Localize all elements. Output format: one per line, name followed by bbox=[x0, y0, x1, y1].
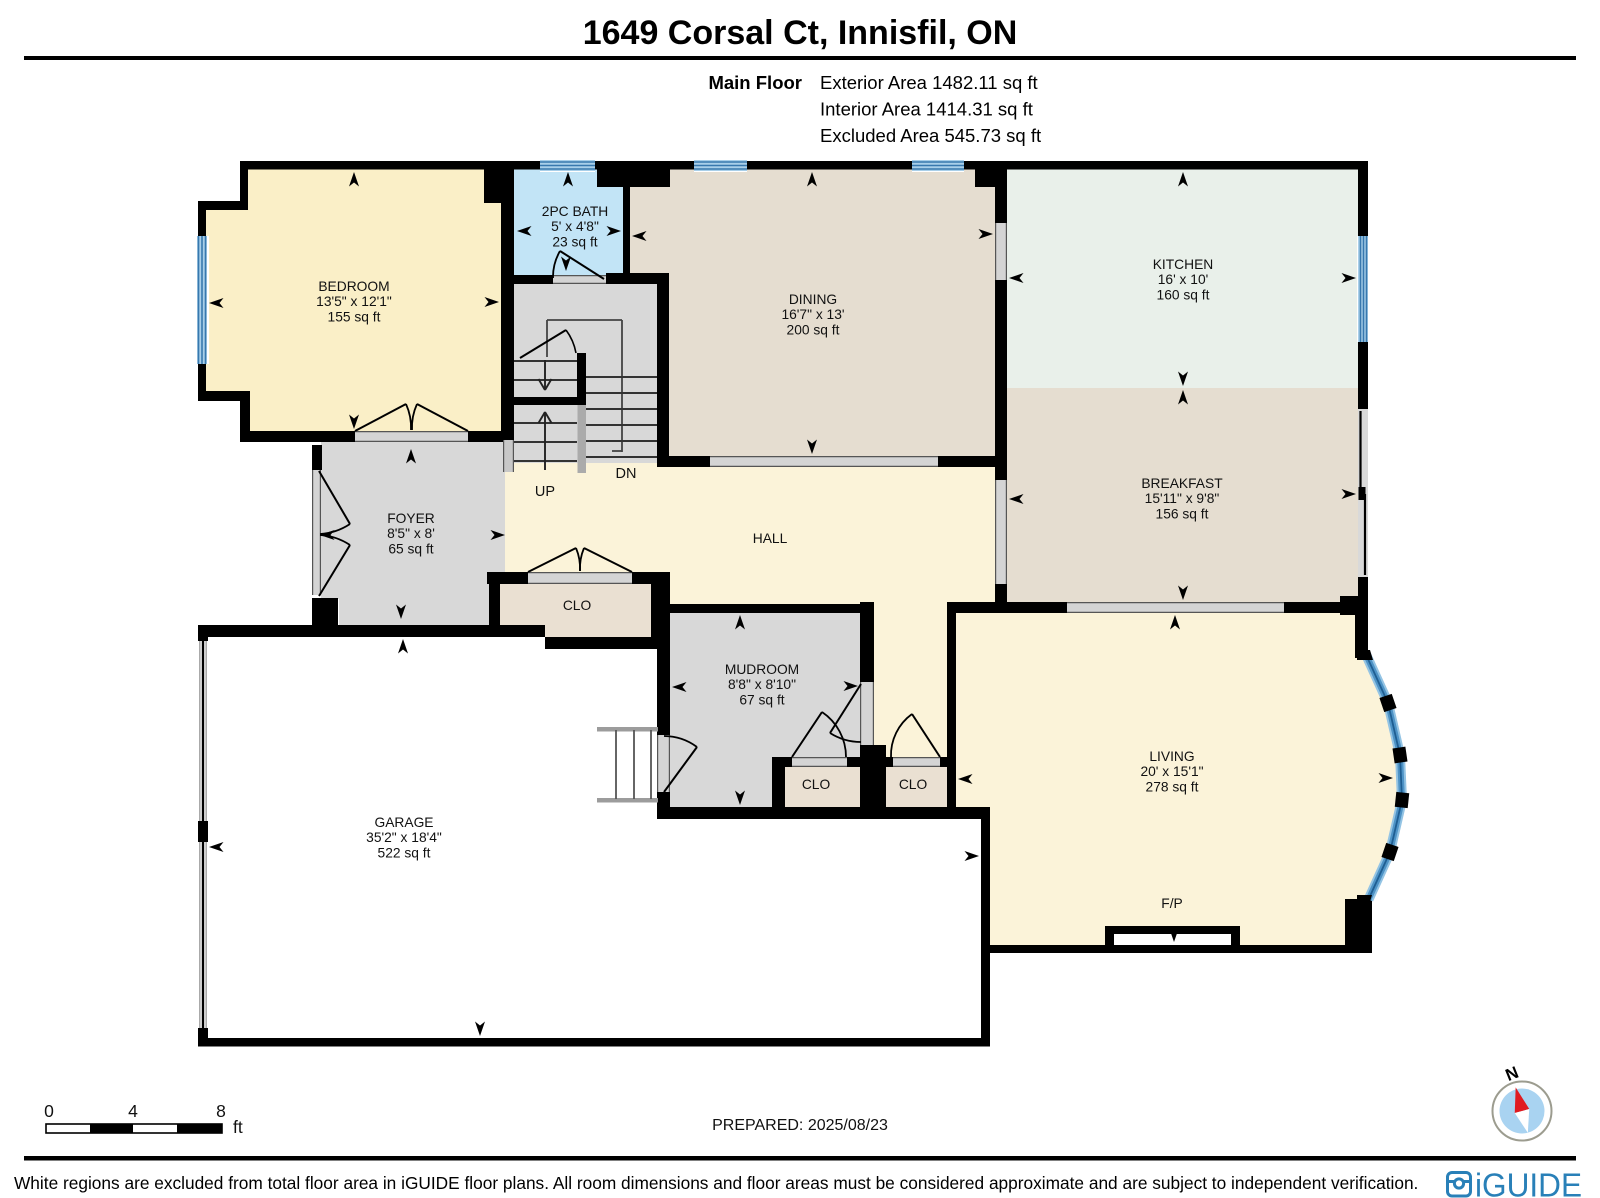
svg-text:PREPARED: 2025/08/23: PREPARED: 2025/08/23 bbox=[712, 1117, 888, 1134]
svg-text:LIVING: LIVING bbox=[1149, 749, 1194, 764]
svg-text:Excluded Area 545.73 sq ft: Excluded Area 545.73 sq ft bbox=[820, 125, 1041, 146]
svg-text:23 sq ft: 23 sq ft bbox=[552, 234, 597, 249]
svg-text:5' x 4'8": 5' x 4'8" bbox=[551, 219, 599, 234]
svg-text:522 sq ft: 522 sq ft bbox=[378, 845, 431, 860]
svg-text:16' x 10': 16' x 10' bbox=[1158, 272, 1209, 287]
svg-text:15'11" x 9'8": 15'11" x 9'8" bbox=[1145, 491, 1220, 506]
svg-text:200 sq ft: 200 sq ft bbox=[787, 322, 840, 337]
svg-text:1649 Corsal Ct, Innisfil, ON: 1649 Corsal Ct, Innisfil, ON bbox=[583, 14, 1018, 52]
svg-text:CLO: CLO bbox=[899, 777, 928, 792]
svg-text:KITCHEN: KITCHEN bbox=[1153, 257, 1214, 272]
svg-text:CLO: CLO bbox=[563, 598, 592, 613]
svg-text:65 sq ft: 65 sq ft bbox=[388, 541, 433, 556]
svg-text:20' x 15'1": 20' x 15'1" bbox=[1140, 764, 1203, 779]
svg-text:ft: ft bbox=[233, 1117, 243, 1137]
svg-text:F/P: F/P bbox=[1161, 896, 1182, 911]
svg-text:MUDROOM: MUDROOM bbox=[725, 662, 799, 677]
svg-text:2PC BATH: 2PC BATH bbox=[542, 204, 608, 219]
svg-text:8: 8 bbox=[216, 1101, 226, 1121]
svg-text:UP: UP bbox=[535, 484, 555, 500]
svg-text:13'5" x 12'1": 13'5" x 12'1" bbox=[316, 294, 392, 309]
svg-text:35'2" x 18'4": 35'2" x 18'4" bbox=[366, 830, 442, 845]
svg-text:DN: DN bbox=[616, 466, 637, 482]
svg-text:0: 0 bbox=[44, 1101, 54, 1121]
svg-text:White regions are excluded fro: White regions are excluded from total fl… bbox=[14, 1173, 1418, 1193]
svg-text:4: 4 bbox=[128, 1101, 138, 1121]
svg-text:CLO: CLO bbox=[802, 777, 831, 792]
svg-text:8'5" x 8': 8'5" x 8' bbox=[387, 526, 435, 541]
svg-text:BREAKFAST: BREAKFAST bbox=[1141, 476, 1223, 491]
svg-text:67 sq ft: 67 sq ft bbox=[739, 692, 784, 707]
svg-text:BEDROOM: BEDROOM bbox=[318, 279, 389, 294]
svg-text:GARAGE: GARAGE bbox=[374, 815, 433, 830]
svg-text:278 sq ft: 278 sq ft bbox=[1146, 779, 1199, 794]
svg-text:Main Floor: Main Floor bbox=[708, 72, 802, 93]
svg-text:16'7" x 13': 16'7" x 13' bbox=[781, 307, 844, 322]
svg-text:160 sq ft: 160 sq ft bbox=[1157, 287, 1210, 302]
svg-text:iGUIDE: iGUIDE bbox=[1475, 1167, 1582, 1198]
svg-text:HALL: HALL bbox=[753, 531, 788, 546]
svg-text:FOYER: FOYER bbox=[387, 511, 435, 526]
svg-text:155 sq ft: 155 sq ft bbox=[328, 309, 381, 324]
svg-text:Interior Area 1414.31 sq ft: Interior Area 1414.31 sq ft bbox=[820, 99, 1033, 120]
svg-text:DINING: DINING bbox=[789, 292, 837, 307]
svg-text:156 sq ft: 156 sq ft bbox=[1156, 506, 1209, 521]
svg-text:8'8" x 8'10": 8'8" x 8'10" bbox=[728, 677, 796, 692]
svg-text:Exterior Area 1482.11 sq ft: Exterior Area 1482.11 sq ft bbox=[820, 72, 1038, 93]
